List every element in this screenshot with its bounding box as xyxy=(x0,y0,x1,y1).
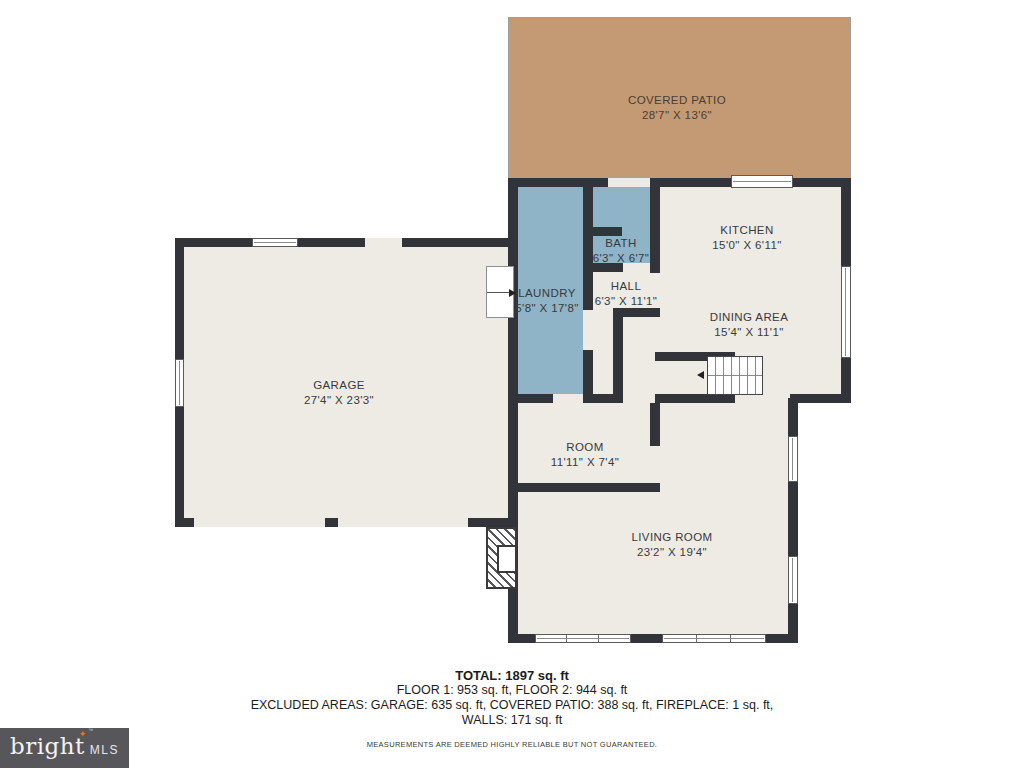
kitchen-label: KITCHEN 15'0" X 6'11" xyxy=(712,223,781,252)
stairs-arrow-icon xyxy=(697,371,704,379)
wall xyxy=(508,178,851,187)
hall-label: HALL 6'3" X 11'1" xyxy=(595,279,658,308)
garage-door-opening xyxy=(365,238,402,247)
living-room-label: LIVING ROOM 23'2" X 19'4" xyxy=(631,530,712,559)
kitchen-window xyxy=(731,175,793,188)
wall xyxy=(583,350,593,403)
living-room-window xyxy=(535,634,631,643)
floor-areas: FLOOR 1: 953 sq. ft, FLOOR 2: 944 sq. ft xyxy=(0,683,1024,698)
wall xyxy=(650,403,660,446)
total-area: TOTAL: 1897 sq. ft xyxy=(0,668,1024,683)
wall xyxy=(655,394,735,403)
wall xyxy=(650,183,660,273)
bright-mls-logo: bright✦™ MLS xyxy=(0,728,129,768)
wall xyxy=(175,238,508,247)
wall xyxy=(788,398,798,643)
logo-star-icon: ✦ xyxy=(79,730,87,739)
room-door-opening xyxy=(553,394,583,403)
floor-plan-page: COVERED PATIO 28'7" X 13'6" KITCHEN 15'0… xyxy=(0,0,1024,768)
living-room-window xyxy=(788,436,798,482)
dining-window xyxy=(841,266,851,358)
wall xyxy=(613,308,623,403)
living-room-window xyxy=(788,556,798,604)
wall xyxy=(325,518,338,527)
dining-area-label: DINING AREA 15'4" X 11'1" xyxy=(710,310,789,339)
walls-area: WALLS: 171 sq. ft xyxy=(0,713,1024,728)
excluded-areas: EXCLUDED AREAS: GARAGE: 635 sq. ft, COVE… xyxy=(0,698,1024,713)
wall xyxy=(790,394,851,403)
bath-door-opening xyxy=(623,263,650,273)
wall xyxy=(468,518,512,527)
trademark-symbol: ™ xyxy=(88,728,94,733)
laundry-door-opening xyxy=(583,310,593,350)
room-label: ROOM 11'11" X 7'4" xyxy=(551,440,619,469)
measurement-disclaimer: MEASUREMENTS ARE DEEMED HIGHLY RELIABLE … xyxy=(0,740,1024,749)
logo-mls-text: MLS xyxy=(90,743,119,757)
area-summary: TOTAL: 1897 sq. ft FLOOR 1: 953 sq. ft, … xyxy=(0,668,1024,728)
logo-wordmark: bright✦™ xyxy=(10,735,85,758)
living-room-window xyxy=(662,634,766,643)
garage-label: GARAGE 27'4" X 23'3" xyxy=(304,378,374,407)
wall xyxy=(513,483,660,492)
patio-door-opening xyxy=(608,178,650,187)
fireplace xyxy=(486,527,517,589)
laundry-label: LAUNDRY 5'8" X 17'8" xyxy=(515,286,578,315)
staircase xyxy=(707,356,763,395)
wall xyxy=(593,394,623,403)
covered-patio-label: COVERED PATIO 28'7" X 13'6" xyxy=(628,93,726,122)
garage-window xyxy=(175,359,184,407)
wall xyxy=(175,518,194,527)
wall xyxy=(508,394,553,403)
garage-window xyxy=(252,238,298,247)
bath-label: BATH 6'3" X 6'7" xyxy=(593,236,650,265)
entry-door xyxy=(486,266,514,318)
wall xyxy=(583,183,593,310)
